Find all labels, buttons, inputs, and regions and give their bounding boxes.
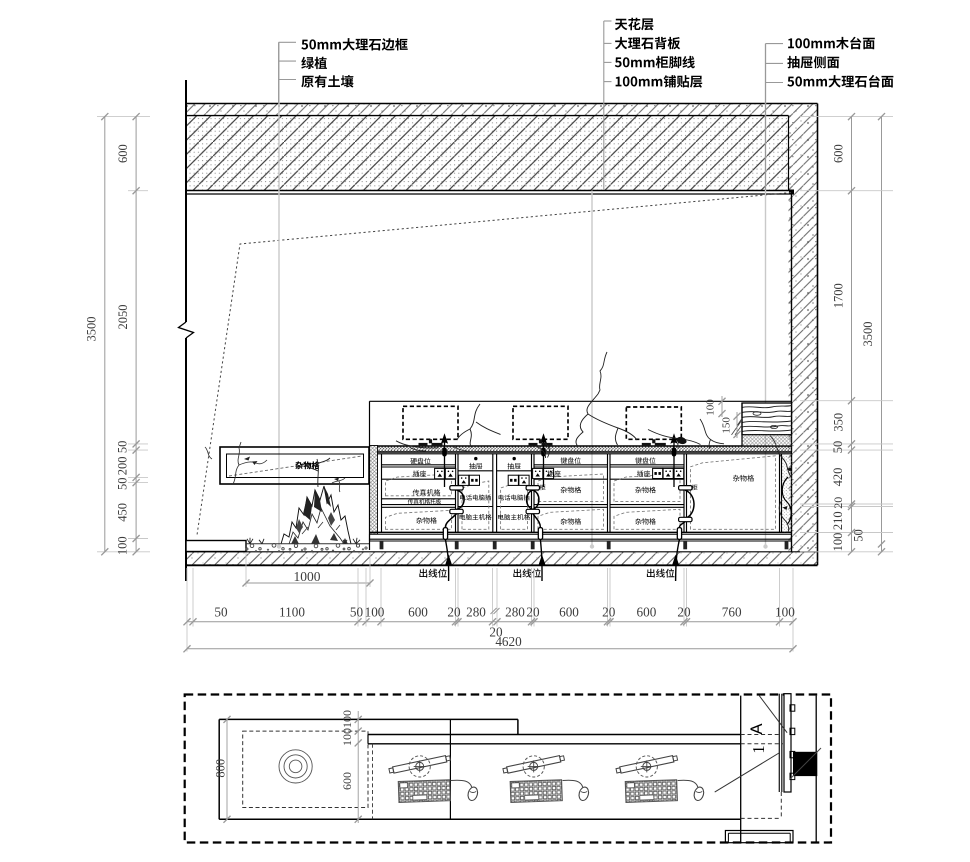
- svg-text:200: 200: [116, 457, 130, 476]
- svg-text:1700: 1700: [832, 283, 846, 308]
- svg-text:2050: 2050: [116, 305, 130, 330]
- svg-text:A: A: [748, 723, 766, 734]
- svg-text:760: 760: [722, 605, 742, 620]
- svg-text:800: 800: [214, 759, 228, 778]
- svg-text:100: 100: [365, 605, 385, 620]
- svg-text:600: 600: [559, 605, 579, 620]
- svg-text:210: 210: [831, 511, 845, 530]
- svg-text:600: 600: [832, 144, 846, 163]
- svg-text:100: 100: [705, 399, 717, 416]
- svg-text:50: 50: [831, 441, 845, 454]
- svg-text:20: 20: [526, 605, 540, 620]
- svg-text:100: 100: [340, 710, 354, 728]
- svg-text:100: 100: [831, 533, 845, 552]
- svg-text:600: 600: [340, 772, 354, 790]
- svg-text:3500: 3500: [85, 317, 99, 342]
- svg-text:20: 20: [831, 497, 845, 509]
- svg-text:280: 280: [505, 605, 525, 620]
- svg-text:4620: 4620: [495, 634, 522, 649]
- svg-text:100: 100: [116, 536, 130, 555]
- svg-text:420: 420: [831, 468, 845, 487]
- svg-text:50: 50: [852, 529, 866, 542]
- svg-text:1: 1: [749, 745, 768, 753]
- svg-text:280: 280: [466, 605, 486, 620]
- svg-text:1100: 1100: [279, 605, 305, 620]
- svg-text:100: 100: [340, 728, 354, 746]
- svg-text:3500: 3500: [861, 322, 875, 347]
- svg-text:450: 450: [116, 503, 130, 522]
- svg-text:20: 20: [602, 605, 616, 620]
- svg-text:350: 350: [832, 413, 846, 432]
- svg-text:600: 600: [637, 605, 657, 620]
- svg-text:50: 50: [116, 441, 130, 454]
- svg-text:50: 50: [350, 605, 364, 620]
- svg-text:600: 600: [116, 144, 130, 163]
- svg-text:600: 600: [408, 605, 428, 620]
- svg-text:150: 150: [721, 417, 733, 434]
- svg-text:50: 50: [116, 477, 130, 490]
- svg-text:50: 50: [214, 605, 228, 620]
- svg-text:1000: 1000: [294, 569, 321, 584]
- svg-text:20: 20: [677, 605, 691, 620]
- svg-text:20: 20: [447, 605, 461, 620]
- svg-text:100: 100: [775, 605, 795, 620]
